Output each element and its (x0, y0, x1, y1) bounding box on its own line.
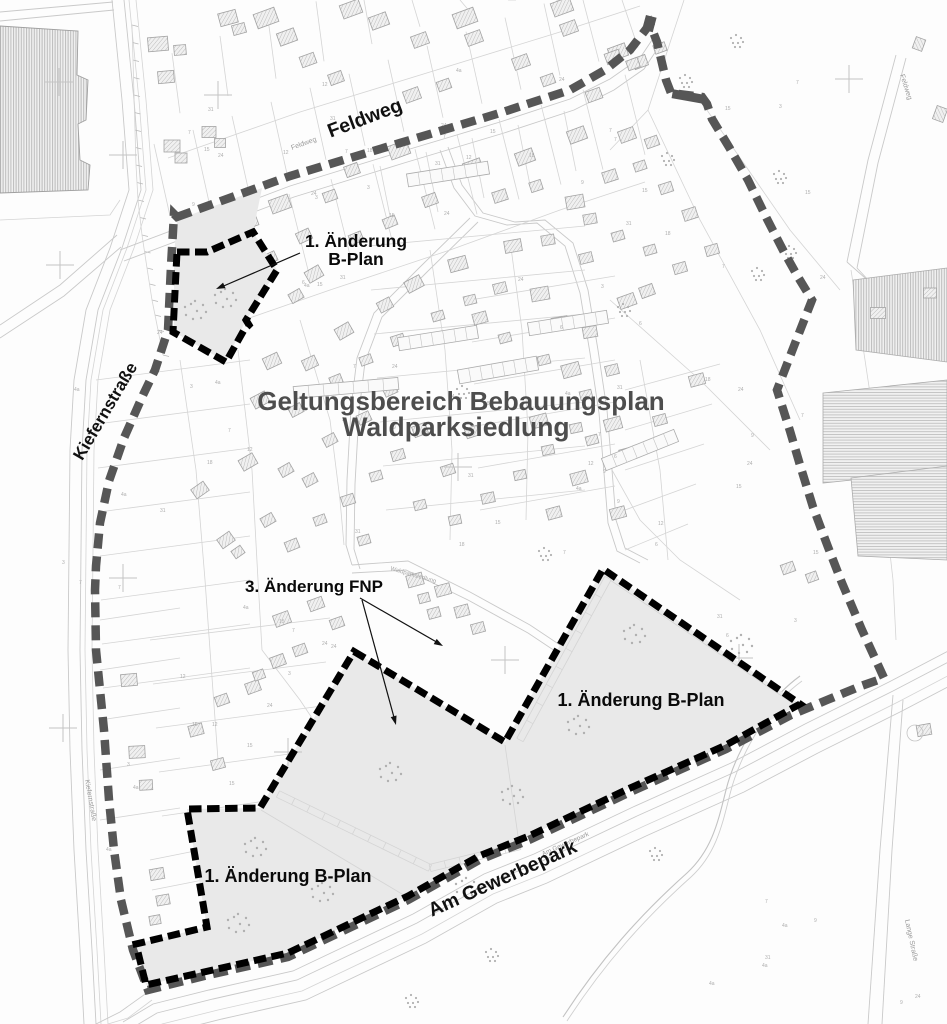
svg-text:7: 7 (443, 134, 446, 140)
svg-text:15: 15 (529, 153, 535, 159)
svg-text:7: 7 (79, 580, 82, 586)
svg-text:15: 15 (229, 781, 235, 787)
svg-text:1. Änderung B-Plan: 1. Änderung B-Plan (557, 690, 724, 710)
svg-text:7: 7 (765, 899, 768, 905)
svg-text:9: 9 (814, 918, 817, 924)
svg-text:7: 7 (598, 432, 601, 438)
svg-text:4a: 4a (121, 492, 127, 498)
svg-text:18: 18 (665, 231, 671, 237)
svg-text:4a: 4a (215, 380, 221, 386)
svg-text:1. Änderung: 1. Änderung (305, 231, 407, 251)
svg-text:31: 31 (340, 275, 346, 281)
svg-text:9: 9 (900, 1000, 903, 1006)
svg-text:3: 3 (288, 671, 291, 677)
svg-text:31: 31 (160, 508, 166, 514)
svg-text:15: 15 (279, 619, 285, 625)
svg-text:7: 7 (353, 364, 356, 370)
svg-text:15: 15 (247, 743, 253, 749)
svg-text:7: 7 (292, 628, 295, 634)
svg-text:4a: 4a (762, 963, 768, 969)
svg-text:12: 12 (466, 155, 472, 161)
svg-text:24: 24 (157, 330, 163, 336)
svg-text:B-Plan: B-Plan (328, 249, 383, 269)
svg-text:12: 12 (322, 82, 328, 88)
svg-text:15: 15 (725, 106, 731, 112)
svg-text:4a: 4a (243, 605, 249, 611)
svg-text:9: 9 (617, 499, 620, 505)
svg-text:31: 31 (208, 107, 214, 113)
svg-text:12: 12 (212, 722, 218, 728)
svg-text:31: 31 (435, 161, 441, 167)
svg-text:6: 6 (655, 542, 658, 548)
svg-text:4a: 4a (133, 785, 139, 791)
svg-text:24: 24 (392, 364, 398, 370)
svg-text:15: 15 (192, 722, 198, 728)
svg-text:31: 31 (717, 614, 723, 620)
svg-text:7: 7 (796, 80, 799, 86)
svg-text:9: 9 (603, 469, 606, 475)
svg-text:3. Änderung FNP: 3. Änderung FNP (245, 577, 383, 596)
svg-text:24: 24 (820, 275, 826, 281)
svg-text:18: 18 (459, 542, 465, 548)
svg-text:3: 3 (62, 560, 65, 566)
svg-text:15: 15 (736, 484, 742, 490)
svg-text:4a: 4a (304, 283, 310, 289)
svg-text:9: 9 (751, 433, 754, 439)
svg-text:15: 15 (813, 550, 819, 556)
svg-text:9: 9 (581, 180, 584, 186)
svg-text:7: 7 (614, 137, 617, 143)
svg-text:31: 31 (765, 955, 771, 961)
svg-text:7: 7 (345, 149, 348, 155)
svg-text:15: 15 (805, 190, 811, 196)
svg-text:15: 15 (204, 147, 210, 153)
svg-text:6: 6 (614, 454, 617, 460)
svg-text:4a: 4a (576, 486, 582, 492)
svg-text:12: 12 (588, 461, 594, 467)
svg-text:6: 6 (639, 321, 642, 327)
svg-text:7: 7 (118, 585, 121, 591)
svg-text:31: 31 (468, 473, 474, 479)
svg-text:15: 15 (490, 129, 496, 135)
svg-text:24: 24 (738, 387, 744, 393)
svg-text:7: 7 (609, 128, 612, 134)
svg-text:7: 7 (188, 130, 191, 136)
svg-text:9: 9 (192, 202, 195, 208)
svg-text:12: 12 (658, 521, 664, 527)
svg-text:4a: 4a (709, 981, 715, 987)
svg-text:3: 3 (367, 185, 370, 191)
svg-text:24: 24 (747, 461, 753, 467)
svg-text:3: 3 (779, 104, 782, 110)
svg-text:31: 31 (626, 221, 632, 227)
svg-text:24: 24 (311, 191, 317, 197)
svg-text:18: 18 (367, 148, 373, 154)
svg-text:24: 24 (218, 153, 224, 159)
svg-text:24: 24 (559, 77, 565, 83)
svg-text:12: 12 (247, 447, 253, 453)
svg-text:3: 3 (794, 618, 797, 624)
svg-text:4a: 4a (74, 387, 80, 393)
svg-text:24: 24 (322, 641, 328, 647)
svg-text:15: 15 (642, 188, 648, 194)
svg-text:6: 6 (560, 325, 563, 331)
svg-text:6: 6 (726, 633, 729, 639)
svg-text:24: 24 (518, 277, 524, 283)
svg-text:3: 3 (190, 384, 193, 390)
svg-text:24: 24 (267, 703, 273, 709)
svg-text:4a: 4a (782, 923, 788, 929)
svg-text:4a: 4a (106, 847, 112, 853)
svg-text:24: 24 (915, 994, 921, 1000)
svg-text:18: 18 (705, 377, 711, 383)
svg-text:1. Änderung B-Plan: 1. Änderung B-Plan (204, 866, 371, 886)
svg-text:15: 15 (317, 282, 323, 288)
svg-text:7: 7 (801, 413, 804, 419)
svg-text:3: 3 (601, 284, 604, 290)
svg-text:7: 7 (722, 264, 725, 270)
svg-text:12: 12 (283, 150, 289, 156)
svg-text:12: 12 (180, 674, 186, 680)
svg-text:7: 7 (563, 550, 566, 556)
svg-text:3: 3 (127, 762, 130, 768)
svg-text:18: 18 (207, 460, 213, 466)
svg-text:4a: 4a (456, 68, 462, 74)
svg-text:Waldparksiedlung: Waldparksiedlung (342, 412, 569, 442)
svg-text:15: 15 (495, 520, 501, 526)
svg-text:24: 24 (444, 211, 450, 217)
svg-text:15: 15 (389, 213, 395, 219)
svg-text:24: 24 (331, 644, 337, 650)
svg-text:7: 7 (228, 428, 231, 434)
svg-text:31: 31 (355, 529, 361, 535)
